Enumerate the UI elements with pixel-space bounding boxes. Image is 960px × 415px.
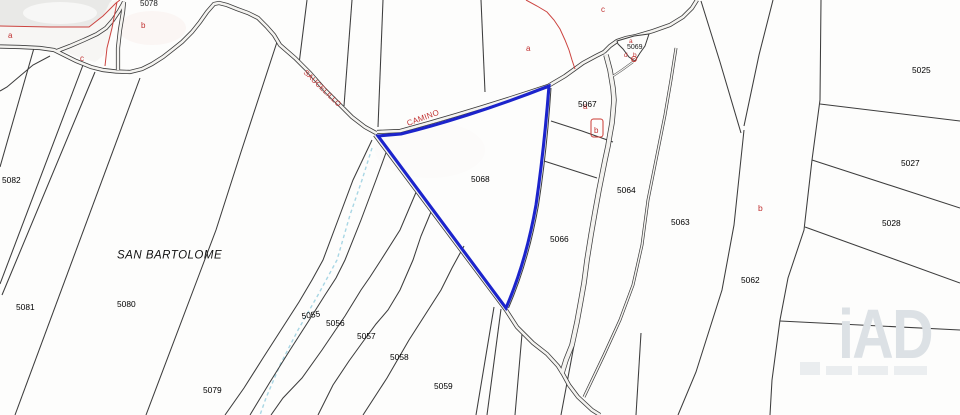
svg-text:5079: 5079 xyxy=(203,385,222,395)
svg-text:5063: 5063 xyxy=(671,217,690,227)
svg-text:5082: 5082 xyxy=(2,175,21,185)
svg-text:5056: 5056 xyxy=(326,318,345,328)
svg-text:b: b xyxy=(758,203,763,213)
svg-text:5066: 5066 xyxy=(550,234,569,244)
svg-text:5080: 5080 xyxy=(117,299,136,309)
svg-text:5062: 5062 xyxy=(741,275,760,285)
svg-text:5028: 5028 xyxy=(882,218,901,228)
svg-text:5059: 5059 xyxy=(434,381,453,391)
svg-text:5068: 5068 xyxy=(471,174,490,184)
svg-text:5057: 5057 xyxy=(357,331,376,341)
svg-text:5067: 5067 xyxy=(578,99,597,109)
svg-text:5025: 5025 xyxy=(912,65,931,75)
svg-text:a: a xyxy=(526,44,531,53)
svg-text:c: c xyxy=(80,54,84,63)
svg-text:b: b xyxy=(594,126,599,135)
svg-text:5069: 5069 xyxy=(627,44,643,51)
svg-text:b: b xyxy=(141,21,146,30)
svg-text:5058: 5058 xyxy=(390,352,409,362)
svg-text:c: c xyxy=(601,5,605,14)
svg-text:a: a xyxy=(8,31,13,40)
svg-text:iAD: iAD xyxy=(838,295,932,374)
svg-text:5064: 5064 xyxy=(617,185,636,195)
svg-text:SAN BARTOLOME: SAN BARTOLOME xyxy=(117,250,222,262)
svg-text:d: d xyxy=(624,52,628,59)
svg-text:5078: 5078 xyxy=(140,0,158,8)
svg-text:5081: 5081 xyxy=(16,302,35,312)
svg-text:5027: 5027 xyxy=(901,158,920,168)
